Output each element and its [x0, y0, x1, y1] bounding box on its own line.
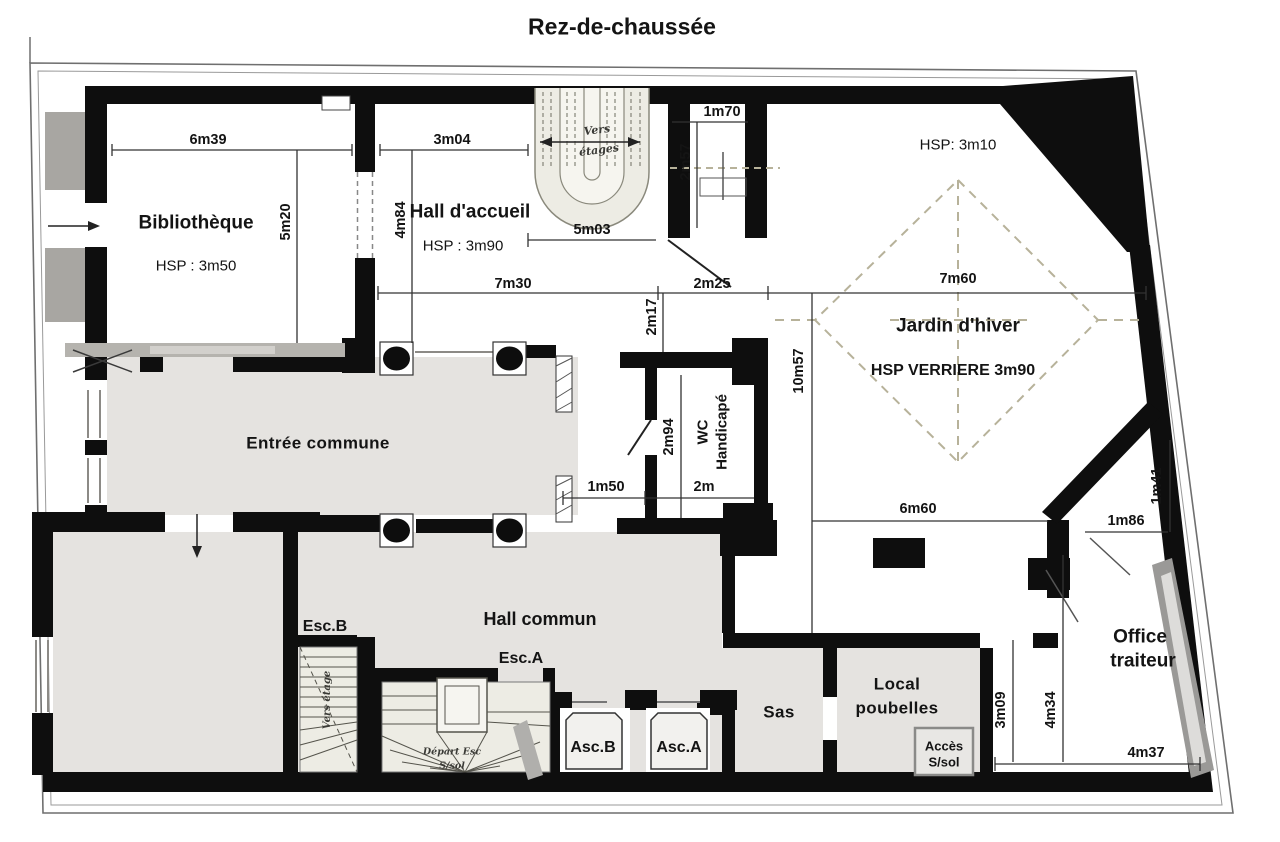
- dim-4m84: 4m84: [394, 201, 409, 238]
- dim-2m17: 2m17: [645, 298, 660, 335]
- room-label-wc-line2: Handicapé: [715, 394, 730, 470]
- hsp-jardin: HSP: 3m10: [920, 138, 997, 153]
- room-label-hall-commun: Hall commun: [483, 610, 596, 628]
- label-esc-a: Esc.A: [499, 651, 543, 667]
- note-vers: Vers: [583, 123, 611, 137]
- dim-3m04: 3m04: [433, 133, 470, 148]
- dim-3m09: 3m09: [994, 691, 1009, 728]
- dim-6m39: 6m39: [189, 133, 226, 148]
- room-label-local-line2: poubelles: [856, 700, 939, 717]
- hsp-hall-accueil: HSP : 3m90: [423, 239, 504, 254]
- esc-a-stair: [382, 678, 550, 780]
- label-asc-a: Asc.A: [656, 740, 701, 756]
- label-acces-line2: S/sol: [928, 756, 959, 769]
- dim-7m30: 7m30: [494, 277, 531, 292]
- dim-4m34: 4m34: [1044, 691, 1059, 728]
- dim-1m50: 1m50: [587, 480, 624, 495]
- dim-5m03: 5m03: [573, 223, 610, 238]
- dim-2m25: 2m25: [693, 277, 730, 292]
- dim-1m70: 1m70: [703, 105, 740, 120]
- room-label-jardin: Jardin d'hiver: [896, 317, 1020, 336]
- dim-7m60: 7m60: [939, 272, 976, 287]
- main-stair: [535, 88, 649, 229]
- dim-1m41: 1m41: [1150, 467, 1165, 504]
- room-label-bibliotheque: Bibliothèque: [138, 214, 253, 233]
- dim-5m20: 5m20: [279, 203, 294, 240]
- note-depart-esc: Départ Esc: [423, 747, 481, 757]
- note-ssol: S/sol: [439, 761, 465, 771]
- room-label-hall-accueil: Hall d'accueil: [410, 203, 531, 222]
- room-label-local-line1: Local: [874, 676, 920, 693]
- dim-6m60: 6m60: [899, 502, 936, 517]
- lower-left-room-floor: [53, 532, 283, 775]
- note-vers-etage: Vers étage: [323, 671, 333, 729]
- room-label-wc-line1: WC: [696, 420, 711, 445]
- label-acces-line1: Accès: [925, 740, 963, 753]
- dim-2m: 2m: [694, 480, 715, 495]
- label-asc-b: Asc.B: [570, 740, 615, 756]
- dim-1m86: 1m86: [1107, 514, 1144, 529]
- room-label-sas: Sas: [763, 704, 794, 721]
- dim-2m57: 2m57: [679, 143, 694, 180]
- room-label-office-line1: Office: [1113, 628, 1167, 647]
- room-label-entree-commune: Entrée commune: [246, 435, 390, 452]
- dim-4m37: 4m37: [1127, 746, 1164, 761]
- floor-plan-drawing: [0, 0, 1280, 842]
- floor-plan-page: Rez-de-chaussée Bibliothèque HSP : 3m50 …: [0, 0, 1280, 842]
- page-title: Rez-de-chaussée: [528, 16, 716, 39]
- hsp-verriere: HSP VERRIERE 3m90: [871, 363, 1035, 379]
- dim-10m57: 10m57: [792, 348, 807, 393]
- label-esc-b: Esc.B: [303, 619, 347, 635]
- dim-2m94: 2m94: [662, 418, 677, 455]
- room-label-office-line2: traiteur: [1110, 652, 1175, 671]
- hsp-bibliotheque: HSP : 3m50: [156, 259, 237, 274]
